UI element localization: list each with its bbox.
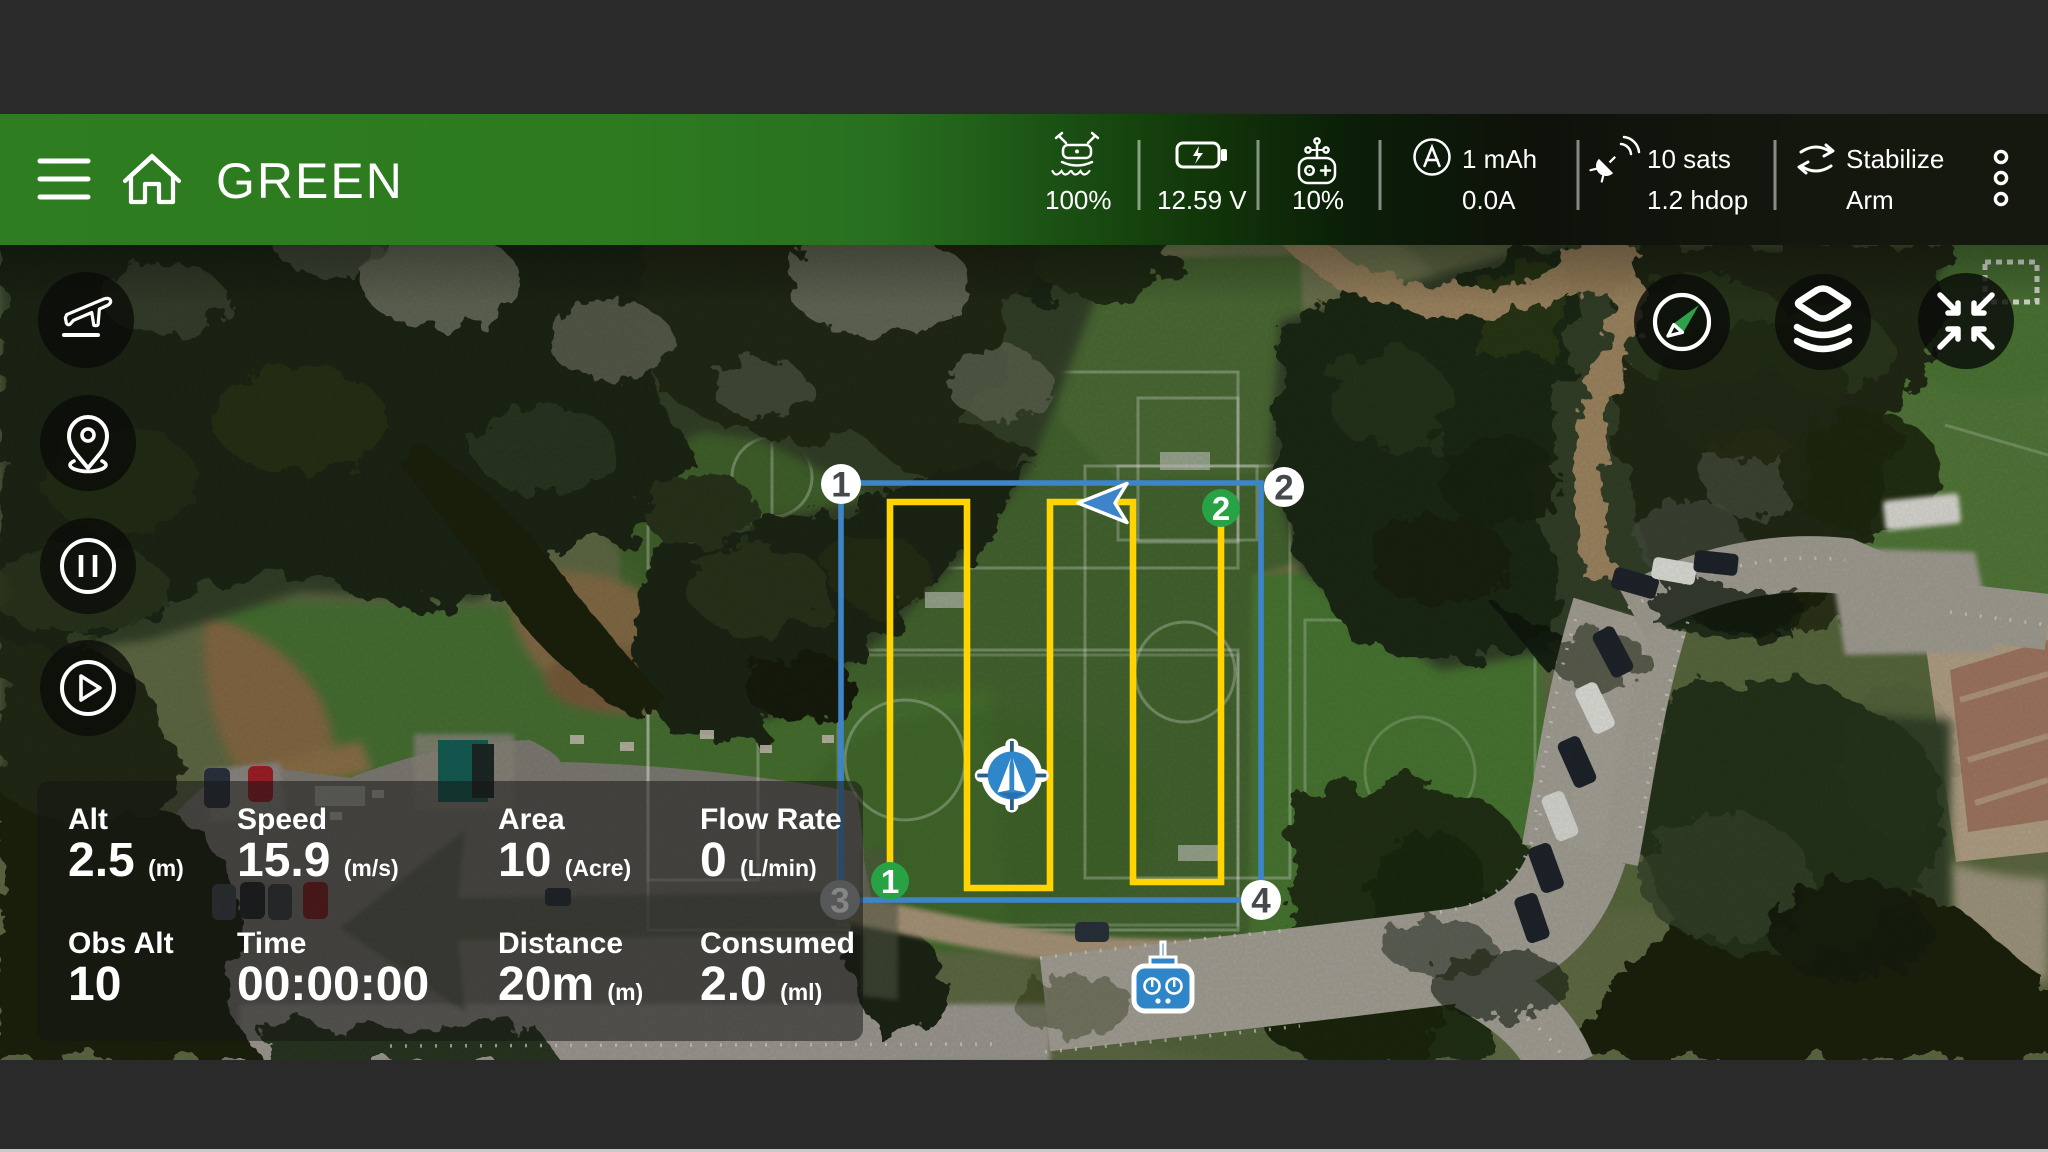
svg-text:1: 1 (881, 863, 899, 900)
svg-text:1: 1 (831, 466, 850, 505)
svg-text:2: 2 (1212, 490, 1230, 527)
svg-text:4: 4 (1251, 882, 1271, 921)
svg-text:2: 2 (1274, 469, 1293, 508)
